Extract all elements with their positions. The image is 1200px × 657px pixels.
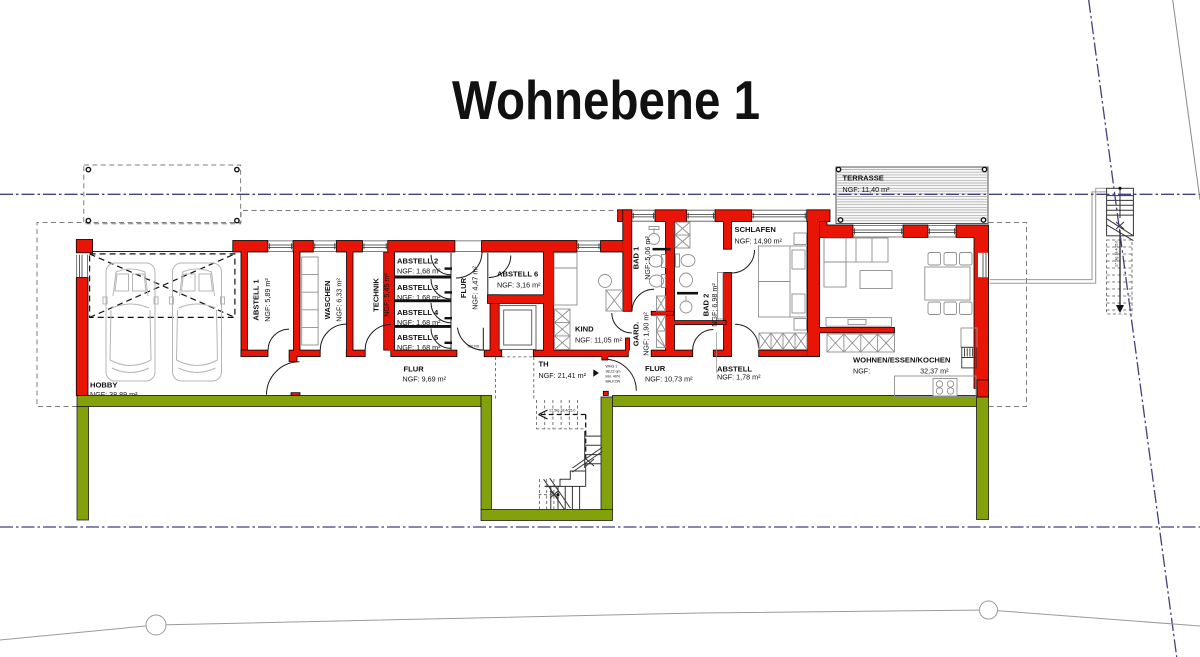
svg-text:TECHNIK: TECHNIK — [372, 278, 381, 312]
svg-text:Wohnebene 1: Wohnebene 1 — [452, 69, 760, 131]
svg-text:NGF: 1,90 m²: NGF: 1,90 m² — [642, 312, 651, 356]
svg-text:NGF:: NGF: — [853, 367, 870, 376]
svg-text:ABSTELL 6: ABSTELL 6 — [497, 270, 538, 279]
svg-text:WHG 1: WHG 1 — [606, 365, 618, 369]
svg-text:NGF: 5,45 m²: NGF: 5,45 m² — [382, 273, 391, 317]
svg-text:NGF: 10,73 m²: NGF: 10,73 m² — [645, 375, 693, 384]
svg-text:FLUR: FLUR — [645, 364, 666, 373]
svg-text:WOHNEN/ESSEN/KOCHEN: WOHNEN/ESSEN/KOCHEN — [853, 356, 950, 365]
svg-text:WASCHEN: WASCHEN — [323, 281, 332, 320]
svg-text:ABSTELL 2: ABSTELL 2 — [397, 257, 438, 266]
svg-text:BALKON: BALKON — [606, 380, 621, 384]
svg-text:NGF: 5,89 m²: NGF: 5,89 m² — [263, 278, 272, 322]
svg-text:inkl. 40%: inkl. 40% — [606, 375, 621, 379]
svg-text:NGF: 11,40 m²: NGF: 11,40 m² — [843, 185, 891, 194]
svg-text:HOBBY: HOBBY — [90, 381, 117, 390]
svg-text:FLUR: FLUR — [404, 365, 425, 374]
svg-text:NGF: 3,16 m²: NGF: 3,16 m² — [497, 281, 541, 290]
svg-text:ABSTELL 1: ABSTELL 1 — [252, 279, 261, 321]
svg-text:NGF: 4,47 m²: NGF: 4,47 m² — [471, 266, 480, 310]
svg-text:17 Stg 18,4/25,0: 17 Stg 18,4/25,0 — [1115, 241, 1119, 267]
svg-text:NGF: 6,33 m²: NGF: 6,33 m² — [335, 278, 344, 322]
svg-text:NGF: 1,68 m²: NGF: 1,68 m² — [397, 343, 441, 352]
svg-text:NGF: 6,98 m²: NGF: 6,98 m² — [710, 283, 719, 327]
svg-text:NGF: 14,90 m²: NGF: 14,90 m² — [735, 237, 783, 246]
svg-text:KIND: KIND — [575, 325, 594, 334]
svg-text:17 Stg 18,4/25,0: 17 Stg 18,4/25,0 — [549, 409, 575, 413]
svg-text:ABSTELL 3: ABSTELL 3 — [397, 283, 438, 292]
svg-text:ABSTELL 5: ABSTELL 5 — [397, 333, 439, 342]
svg-text:NGF: 21,41 m²: NGF: 21,41 m² — [539, 371, 587, 380]
svg-text:T30 RS: T30 RS — [467, 345, 480, 349]
svg-text:98,22 qm: 98,22 qm — [606, 370, 621, 374]
svg-text:TH: TH — [539, 360, 549, 369]
svg-text:32,37 m²: 32,37 m² — [920, 367, 949, 376]
svg-text:NGF: 9,69 m²: NGF: 9,69 m² — [403, 375, 447, 384]
svg-text:SCHLAFEN: SCHLAFEN — [735, 225, 776, 234]
svg-text:TERRASSE: TERRASSE — [843, 174, 884, 183]
svg-text:NGF: 11,05 m²: NGF: 11,05 m² — [575, 336, 623, 345]
svg-text:NGF: 1,68 m²: NGF: 1,68 m² — [397, 293, 441, 302]
svg-text:NGF: 1,68 m²: NGF: 1,68 m² — [397, 318, 441, 327]
svg-text:BAD 1: BAD 1 — [632, 246, 641, 270]
svg-text:NGF: 1,68 m²: NGF: 1,68 m² — [397, 267, 441, 276]
svg-text:NGF: 5,06 m²: NGF: 5,06 m² — [643, 236, 652, 280]
svg-text:GARD.: GARD. — [632, 322, 641, 346]
svg-text:FLUR: FLUR — [459, 277, 468, 298]
svg-text:ABSTELL 4: ABSTELL 4 — [397, 308, 439, 317]
svg-text:NGF: 1,78 m²: NGF: 1,78 m² — [717, 373, 761, 382]
